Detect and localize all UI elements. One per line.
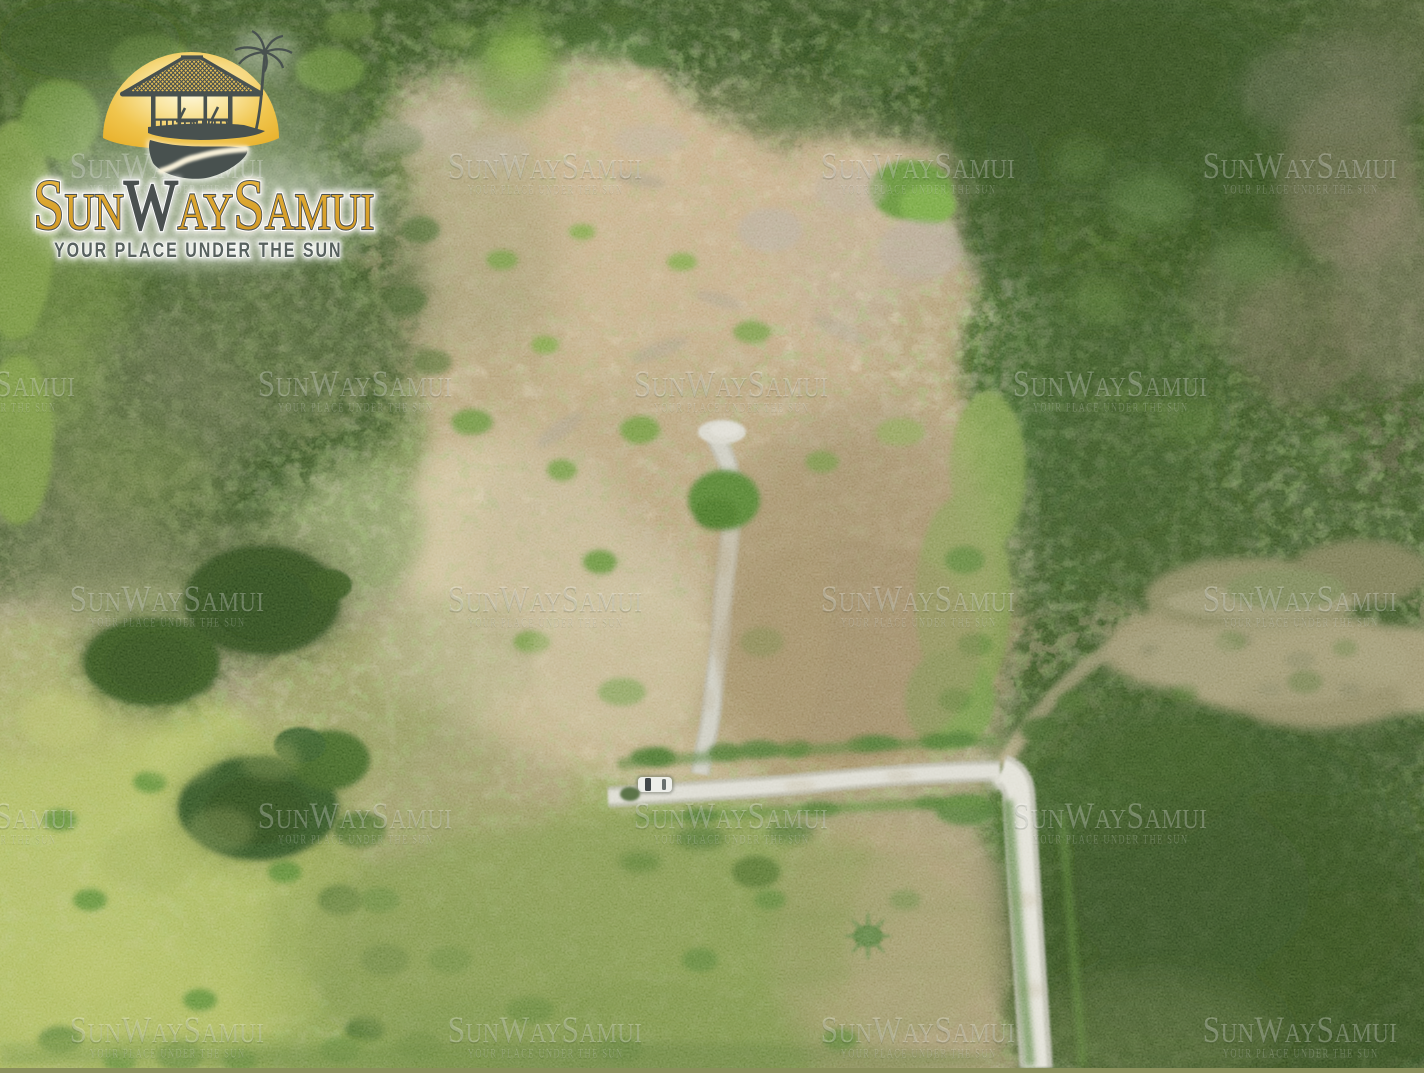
svg-text:YOUR PLACE UNDER THE SUN: YOUR PLACE UNDER THE SUN <box>1033 402 1189 415</box>
svg-text:YOUR PLACE UNDER THE SUN: YOUR PLACE UNDER THE SUN <box>654 402 810 415</box>
svg-text:YOUR PLACE UNDER THE SUN: YOUR PLACE UNDER THE SUN <box>1033 834 1189 847</box>
svg-text:YOUR PLACE UNDER THE SUN: YOUR PLACE UNDER THE SUN <box>841 617 997 630</box>
svg-text:YOUR PLACE UNDER THE SUN: YOUR PLACE UNDER THE SUN <box>468 1048 624 1061</box>
svg-text:YOUR PLACE UNDER THE SUN: YOUR PLACE UNDER THE SUN <box>0 402 56 415</box>
svg-text:YOUR PLACE UNDER THE SUN: YOUR PLACE UNDER THE SUN <box>0 834 56 847</box>
svg-text:YOUR PLACE UNDER THE SUN: YOUR PLACE UNDER THE SUN <box>90 617 246 630</box>
svg-text:YOUR PLACE UNDER THE SUN: YOUR PLACE UNDER THE SUN <box>841 1048 997 1061</box>
svg-text:YOUR PLACE UNDER THE SUN: YOUR PLACE UNDER THE SUN <box>1223 617 1379 630</box>
svg-text:YOUR PLACE UNDER THE SUN: YOUR PLACE UNDER THE SUN <box>90 1048 246 1061</box>
svg-text:YOUR PLACE UNDER THE SUN: YOUR PLACE UNDER THE SUN <box>654 834 810 847</box>
svg-text:YOUR PLACE UNDER THE SUN: YOUR PLACE UNDER THE SUN <box>468 617 624 630</box>
svg-text:YOUR PLACE UNDER THE SUN: YOUR PLACE UNDER THE SUN <box>841 184 997 197</box>
svg-text:YOUR PLACE UNDER THE SUN: YOUR PLACE UNDER THE SUN <box>278 834 434 847</box>
svg-text:YOUR PLACE UNDER THE SUN: YOUR PLACE UNDER THE SUN <box>278 402 434 415</box>
svg-text:YOUR PLACE UNDER THE SUN: YOUR PLACE UNDER THE SUN <box>54 238 343 262</box>
svg-text:YOUR PLACE UNDER THE SUN: YOUR PLACE UNDER THE SUN <box>1223 1048 1379 1061</box>
svg-text:YOUR PLACE UNDER THE SUN: YOUR PLACE UNDER THE SUN <box>468 184 624 197</box>
svg-text:YOUR PLACE UNDER THE SUN: YOUR PLACE UNDER THE SUN <box>1223 184 1379 197</box>
